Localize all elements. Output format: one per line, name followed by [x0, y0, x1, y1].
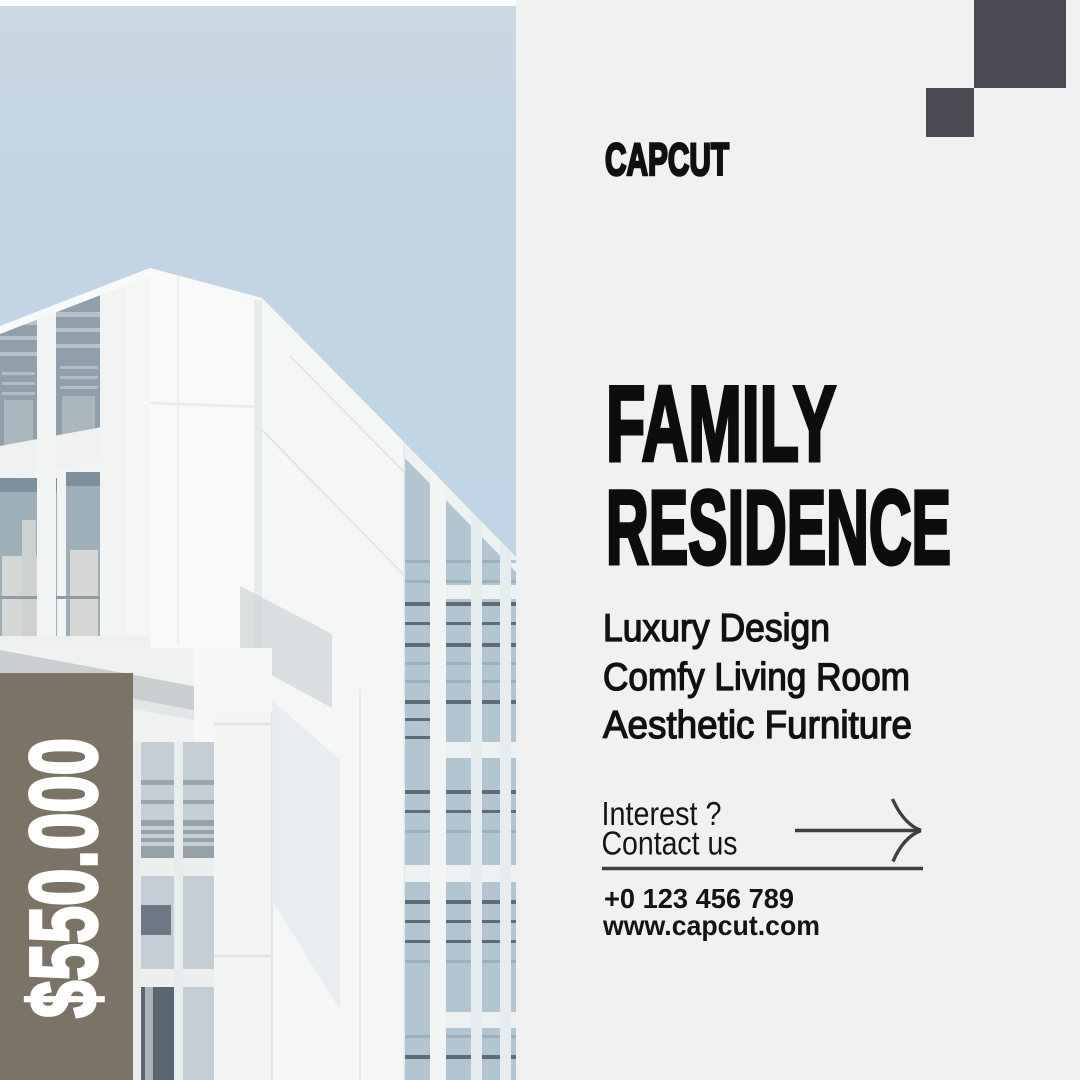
svg-text:CAPCUT: CAPCUT — [605, 134, 729, 185]
svg-text:RESIDENCE: RESIDENCE — [606, 470, 951, 587]
svg-text:FAMILY: FAMILY — [606, 364, 836, 484]
svg-text:Aesthetic Furniture: Aesthetic Furniture — [603, 704, 912, 747]
svg-text:Contact us: Contact us — [602, 825, 738, 862]
svg-text:Luxury Design: Luxury Design — [603, 607, 830, 650]
svg-text:www.capcut.com: www.capcut.com — [602, 910, 820, 941]
svg-text:Comfy Living Room: Comfy Living Room — [603, 656, 910, 699]
